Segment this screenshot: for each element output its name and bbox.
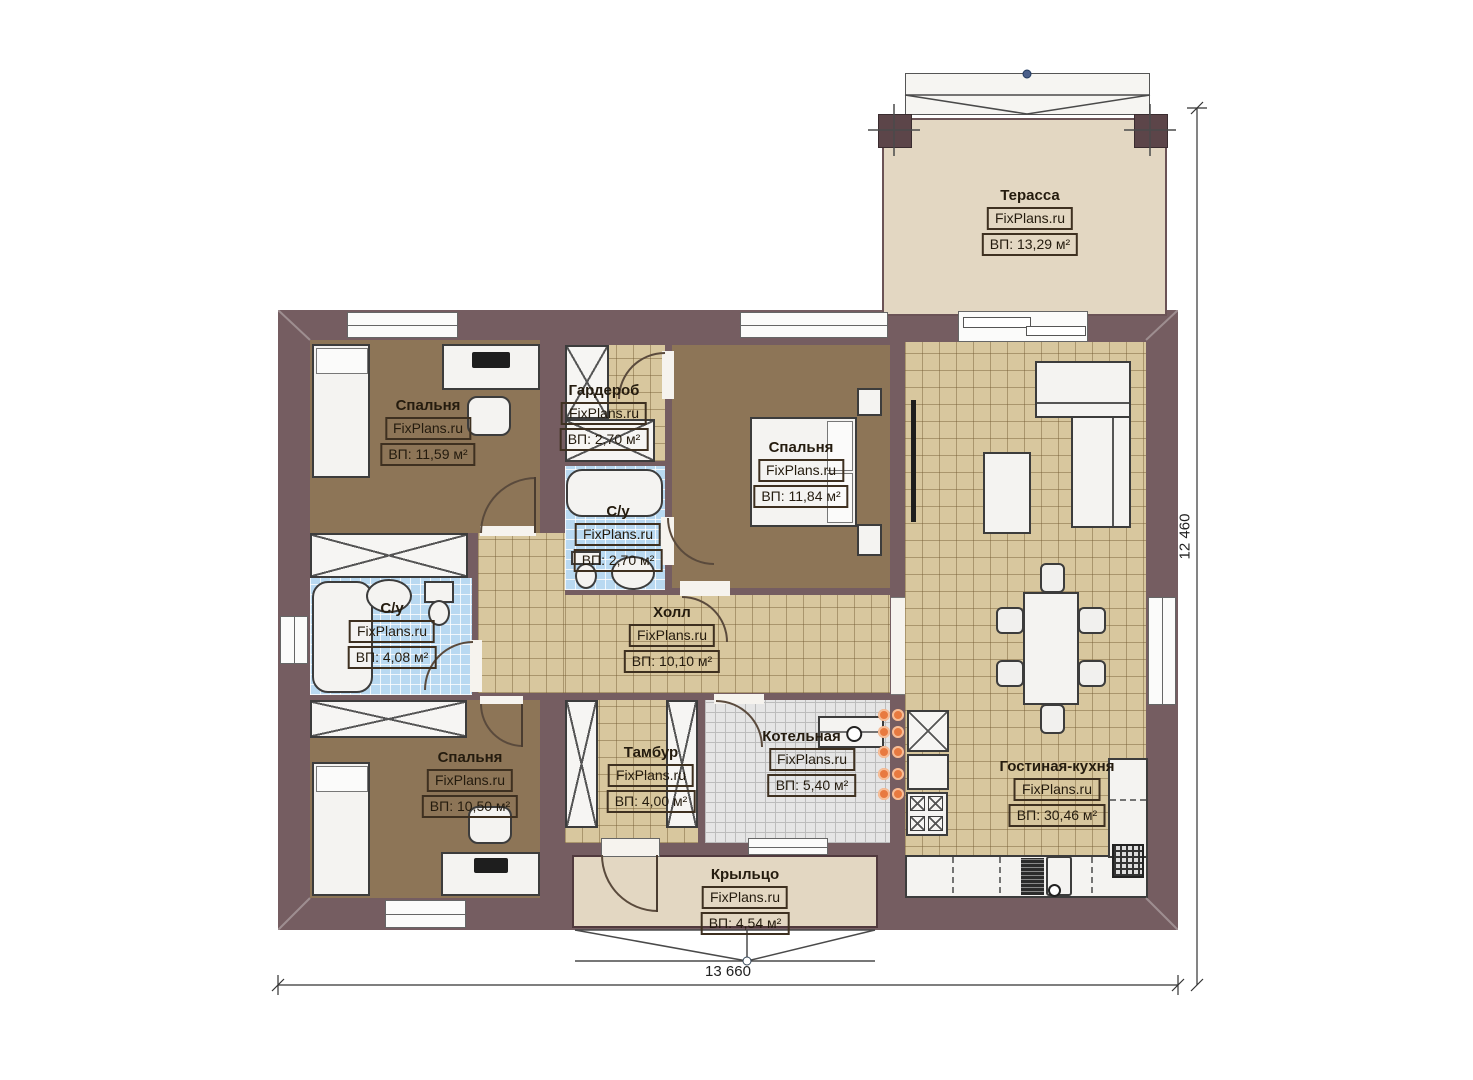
room-label-terrace: Терасса FixPlans.ru ВП: 13,29 м² [982, 187, 1078, 256]
watermark: FixPlans.ru [769, 748, 855, 771]
room-area: ВП: 4,00 м² [607, 790, 696, 813]
room-area: ВП: 2,70 м² [560, 428, 649, 451]
room-label-hall: Холл FixPlans.ru ВП: 10,10 м² [624, 604, 720, 673]
room-name: Тамбур [607, 744, 696, 761]
room-label-bedroom3: Спальня FixPlans.ru ВП: 10,50 м² [422, 749, 518, 818]
room-name: Спальня [422, 749, 518, 766]
boiler-icon [846, 726, 862, 742]
dimension-width: 13 660 [678, 963, 778, 980]
watermark: FixPlans.ru [385, 417, 471, 440]
room-label-bathroom1: С/у FixPlans.ru ВП: 2,70 м² [574, 503, 663, 572]
watermark: FixPlans.ru [758, 459, 844, 482]
room-area: ВП: 13,29 м² [982, 233, 1078, 256]
room-label-porch: Крыльцо FixPlans.ru ВП: 4,54 м² [701, 866, 790, 935]
room-name: Гостиная-кухня [1000, 758, 1115, 775]
room-area: ВП: 10,50 м² [422, 795, 518, 818]
room-area: ВП: 4,54 м² [701, 912, 790, 935]
room-label-bedroom2: Спальня FixPlans.ru ВП: 11,84 м² [753, 439, 848, 508]
room-area: ВП: 11,59 м² [380, 443, 475, 466]
room-name: С/у [348, 600, 437, 617]
room-name: Спальня [380, 397, 475, 414]
room-label-wardrobe: Гардероб FixPlans.ru ВП: 2,70 м² [560, 382, 649, 451]
room-name: Крыльцо [701, 866, 790, 883]
room-name: Спальня [753, 439, 848, 456]
room-name: Терасса [982, 187, 1078, 204]
room-area: ВП: 2,70 м² [574, 549, 663, 572]
room-label-living-kitchen: Гостиная-кухня FixPlans.ru ВП: 30,46 м² [1000, 758, 1115, 827]
dimension-height: 12 460 [1177, 487, 1194, 587]
room-label-boiler: Котельная FixPlans.ru ВП: 5,40 м² [762, 726, 862, 797]
room-name: Холл [624, 604, 720, 621]
room-area: ВП: 5,40 м² [768, 774, 857, 797]
watermark: FixPlans.ru [702, 886, 788, 909]
room-name: Котельная [762, 726, 862, 745]
watermark: FixPlans.ru [561, 402, 647, 425]
room-area: ВП: 11,84 м² [753, 485, 848, 508]
room-area: ВП: 4,08 м² [348, 646, 437, 669]
watermark: FixPlans.ru [608, 764, 694, 787]
watermark: FixPlans.ru [349, 620, 435, 643]
watermark: FixPlans.ru [987, 207, 1073, 230]
room-area: ВП: 10,10 м² [624, 650, 720, 673]
watermark: FixPlans.ru [427, 769, 513, 792]
room-name: Гардероб [560, 382, 649, 399]
room-label-bedroom1: Спальня FixPlans.ru ВП: 11,59 м² [380, 397, 475, 466]
room-label-vestibule: Тамбур FixPlans.ru ВП: 4,00 м² [607, 744, 696, 813]
floor-plan: Терасса FixPlans.ru ВП: 13,29 м² Спальня… [0, 0, 1473, 1080]
room-area: ВП: 30,46 м² [1009, 804, 1105, 827]
room-name: С/у [574, 503, 663, 520]
watermark: FixPlans.ru [629, 624, 715, 647]
watermark: FixPlans.ru [575, 523, 661, 546]
watermark: FixPlans.ru [1014, 778, 1100, 801]
room-label-bathroom2: С/у FixPlans.ru ВП: 4,08 м² [348, 600, 437, 669]
